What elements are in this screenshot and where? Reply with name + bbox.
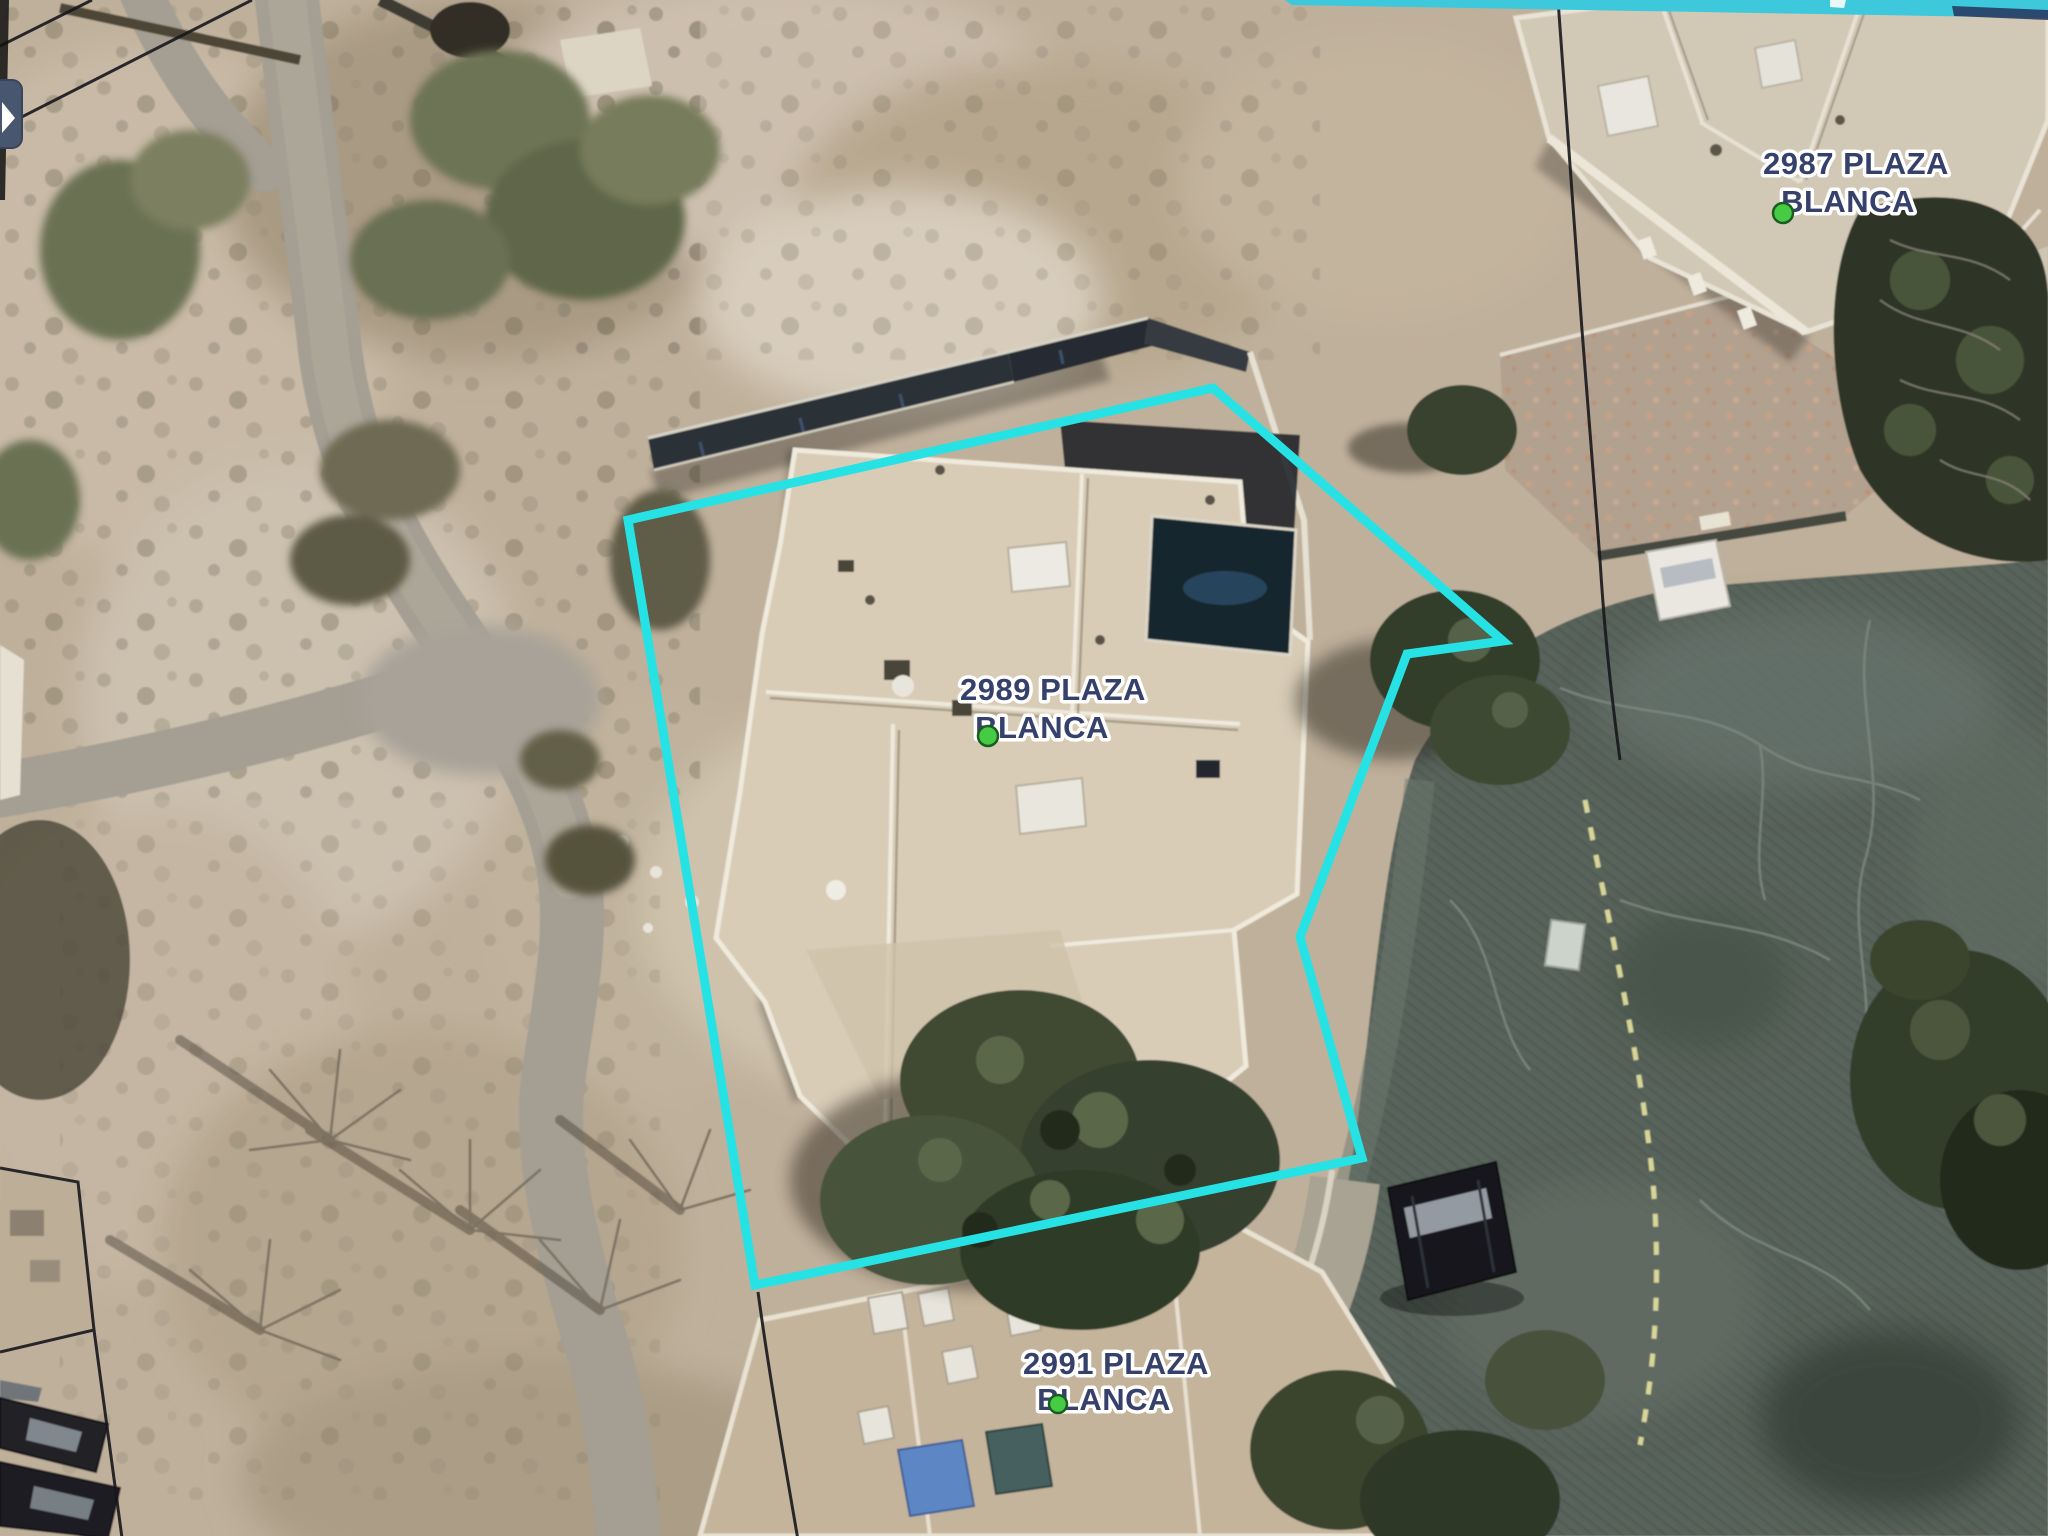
blue-tarp — [898, 1440, 974, 1516]
patio-table — [826, 880, 846, 900]
pool-area — [1146, 516, 1296, 655]
teal-cover — [986, 1424, 1052, 1494]
screenshot-root: 2987 PLAZA BLANCA 2989 PLAZA BLANCA 2991… — [0, 0, 2048, 1536]
parcel-label-2989-line1: 2989 PLAZA — [960, 672, 1146, 707]
parcel-label-2991-line1: 2991 PLAZA — [1023, 1346, 1209, 1381]
parking-tree — [1407, 385, 1517, 475]
parcel-label-2987-line2: BLANCA — [1781, 184, 1915, 219]
road-paint-marking — [1545, 920, 1585, 970]
side-panel-toggle[interactable] — [0, 80, 22, 148]
map-canvas[interactable]: 2987 PLAZA BLANCA 2989 PLAZA BLANCA 2991… — [0, 0, 2048, 1536]
parcel-marker-2991[interactable] — [1049, 1395, 1067, 1413]
parcel-marker-2989[interactable] — [978, 726, 998, 746]
parcel-label-2987-line1: 2987 PLAZA — [1763, 146, 1949, 181]
parcel-marker-2987[interactable] — [1773, 203, 1793, 223]
satellite-basemap — [0, 0, 2048, 1536]
